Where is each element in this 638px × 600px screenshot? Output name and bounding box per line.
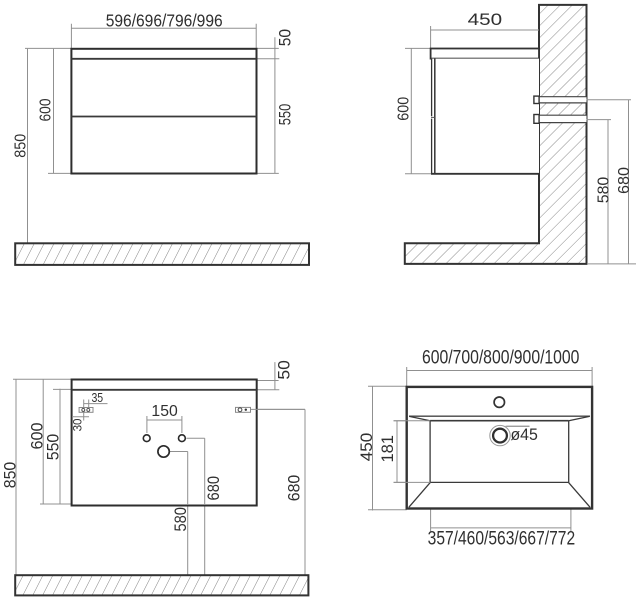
svg-text:680: 680	[616, 167, 633, 194]
svg-text:550: 550	[276, 104, 294, 126]
svg-text:850: 850	[1, 462, 19, 489]
svg-text:680: 680	[286, 475, 304, 502]
svg-text:450: 450	[358, 433, 376, 462]
svg-text:50: 50	[275, 360, 293, 380]
svg-text:ø45: ø45	[510, 426, 538, 444]
svg-text:580: 580	[596, 177, 613, 204]
svg-text:50: 50	[275, 29, 294, 46]
svg-text:35: 35	[91, 391, 103, 405]
svg-text:181: 181	[379, 435, 397, 463]
svg-text:580: 580	[172, 507, 190, 532]
svg-text:357/460/563/667/772: 357/460/563/667/772	[428, 529, 576, 550]
svg-text:850: 850	[13, 134, 30, 158]
svg-text:600: 600	[395, 97, 412, 121]
svg-text:680: 680	[205, 476, 223, 501]
svg-text:600/700/800/900/1000: 600/700/800/900/1000	[422, 348, 580, 369]
svg-text:450: 450	[468, 11, 503, 29]
svg-text:596/696/796/996: 596/696/796/996	[106, 11, 223, 31]
svg-text:30: 30	[73, 419, 85, 432]
svg-text:150: 150	[151, 403, 178, 420]
svg-text:550: 550	[45, 434, 63, 461]
svg-text:600: 600	[38, 98, 55, 121]
